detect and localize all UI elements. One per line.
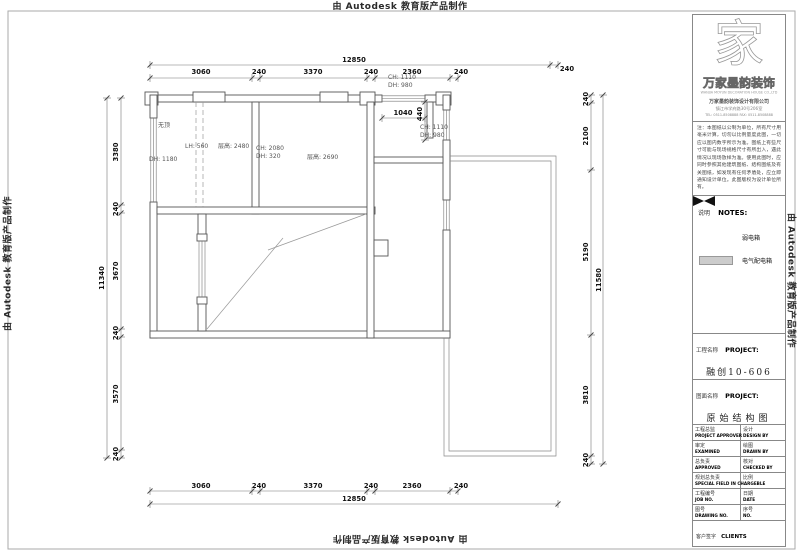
room-label: CH: 1110 xyxy=(388,74,416,81)
table-cell-en: EXAMINED xyxy=(695,449,738,454)
room-label: LH: 560 xyxy=(185,143,208,150)
dim-label: 12850 xyxy=(342,56,366,64)
dim-label: 240 xyxy=(454,68,468,76)
legend: 弱电箱电气配电箱 xyxy=(698,233,780,265)
dim-label: 3810 xyxy=(582,385,590,404)
logo-subtitle: WANJIA MOYUN DECORATION HOUSE CO.,LTD xyxy=(701,91,778,95)
dim-label: 3060 xyxy=(192,68,211,76)
clients-section: 客户签字 CLIENTS xyxy=(693,520,785,548)
table-row: 总负责APPROVED核对CHECKED BY xyxy=(693,457,785,473)
table-cell-en: NO. xyxy=(743,513,783,518)
company-name: 万家墨韵装饰设计有限公司 xyxy=(708,98,769,105)
dim-label: 240 xyxy=(454,482,468,490)
table-cell-en: APPROVED xyxy=(695,465,738,470)
dim-label: 240 xyxy=(252,482,266,490)
clients-label-en: CLIENTS xyxy=(721,534,747,540)
table-cell-en: DRAWN BY xyxy=(743,449,783,454)
table-cell-cn: 设计 xyxy=(743,426,783,433)
table-row: 审定EXAMINED绘图DRAWN BY xyxy=(693,441,785,457)
dim-label: 240 xyxy=(112,202,120,216)
room-label: CH: 2080 xyxy=(256,145,284,152)
table-cell-cn: 审定 xyxy=(695,442,738,449)
drawing-label-cn: 图面名称 xyxy=(696,394,718,400)
project-label-cn: 工程名称 xyxy=(696,348,718,354)
dim-label: 240 xyxy=(364,68,378,76)
autodesk-watermark-left: 由 Autodesk 教育版产品制作 xyxy=(1,184,14,344)
table-cell: 图号DRAWING NO. xyxy=(693,505,741,520)
legend-item: 电气配电箱 xyxy=(698,256,780,265)
dim-label: 2100 xyxy=(582,126,590,145)
table-cell-en: DESIGN BY xyxy=(743,433,783,438)
dim-label: 3370 xyxy=(304,482,323,490)
project-name-value: 融创10-606 xyxy=(696,365,782,378)
table-cell-cn: 图号 xyxy=(695,506,738,513)
table-cell-cn: 工程总监 xyxy=(695,426,738,433)
table-cell-en: CHECKED BY xyxy=(743,465,783,470)
table-row: 规划总负责SPECIAL FIELD IN CHARGEBLE比例 xyxy=(693,473,785,489)
table-row: 图号DRAWING NO.序号NO. xyxy=(693,505,785,521)
room-label: DH: 320 xyxy=(256,153,281,160)
table-row: 工程总监PROJECT APPROVER设计DESIGN BY xyxy=(693,425,785,441)
dim-label: 3570 xyxy=(112,384,120,403)
table-cell: 绘图DRAWN BY xyxy=(741,441,785,456)
table-cell: 设计DESIGN BY xyxy=(741,425,785,440)
project-label-en: PROJECT: xyxy=(725,346,759,354)
table-cell-en: JOB NO. xyxy=(695,497,738,502)
title-block: 家 万家墨韵装饰 WANJIA MOYUN DECORATION HOUSE C… xyxy=(692,14,786,547)
floor-plan-canvas: 1285024030602403370240236024030602403370… xyxy=(0,0,800,560)
dim-label: 2360 xyxy=(403,482,422,490)
notes-header-cn: 说明 xyxy=(698,210,710,217)
drawing-sheet: 1285024030602403370240236024030602403370… xyxy=(0,0,800,560)
drawing-name-section: 图面名称 PROJECT: 原始结构图 xyxy=(693,379,785,424)
dim-label: 3380 xyxy=(112,142,120,161)
dim-label: 240 xyxy=(252,68,266,76)
table-cell: 日期DATE xyxy=(741,489,785,504)
logo-name: 万家墨韵装饰 xyxy=(702,75,775,90)
autodesk-watermark-bottom: 由 Autodesk 教育版产品制作 xyxy=(320,533,480,546)
room-label: 层高: 2480 xyxy=(218,142,249,150)
room-label: 无顶 xyxy=(158,122,170,129)
table-cell-cn: 日期 xyxy=(743,490,783,497)
table-cell: 审定EXAMINED xyxy=(693,441,741,456)
terrace-railing xyxy=(444,156,556,456)
drawing-label-en: PROJECT: xyxy=(725,392,759,400)
walls xyxy=(145,92,451,338)
company-phone: TEL: 0511-8508888 FAX: 0511-8508888 xyxy=(704,113,773,117)
table-cell: 工程总监PROJECT APPROVER xyxy=(693,425,741,440)
dim-label: 240 xyxy=(364,482,378,490)
table-row: 工程编号JOB NO.日期DATE xyxy=(693,489,785,505)
table-cell-cn: 比例 xyxy=(743,474,783,481)
table-cell-cn: 序号 xyxy=(743,506,783,513)
table-cell: 工程编号JOB NO. xyxy=(693,489,741,504)
table-cell-cn: 工程编号 xyxy=(695,490,738,497)
table-cell-cn: 总负责 xyxy=(695,458,738,465)
table-cell-en: DRAWING NO. xyxy=(695,513,738,518)
diagonal-lines xyxy=(207,214,366,329)
room-label: DH: 980 xyxy=(420,132,445,139)
company-logo: 家 万家墨韵装饰 WANJIA MOYUN DECORATION HOUSE C… xyxy=(693,15,785,119)
dim-label: 11580 xyxy=(595,268,603,292)
table-cell-en: PROJECT APPROVER xyxy=(695,433,738,438)
room-annotations: 无顶LH: 560层高: 2480DH: 1180CH: 2080DH: 320… xyxy=(149,74,448,163)
legend-item: 弱电箱 xyxy=(698,233,780,242)
company-address: 镇江市学府路30号206室 xyxy=(716,105,763,112)
dim-label: 3670 xyxy=(112,261,120,280)
table-cell: 规划总负责SPECIAL FIELD IN CHARGEBLE xyxy=(693,473,741,488)
dim-label: 3060 xyxy=(192,482,211,490)
table-cell-en: SPECIAL FIELD IN CHARGEBLE xyxy=(695,481,738,486)
dim-label: 12850 xyxy=(342,495,366,503)
approval-table: 工程总监PROJECT APPROVER设计DESIGN BY审定EXAMINE… xyxy=(693,424,785,520)
table-cell-cn: 核对 xyxy=(743,458,783,465)
table-cell: 总负责APPROVED xyxy=(693,457,741,472)
dim-label: 3370 xyxy=(304,68,323,76)
drawing-name-label: 图面名称 PROJECT: xyxy=(696,383,782,402)
room-label: CH: 1110 xyxy=(420,124,448,131)
logo-glyph: 家 xyxy=(714,15,764,73)
dim-label: 240 xyxy=(112,447,120,461)
notes-header-en: NOTES: xyxy=(718,209,747,217)
room-label: DH: 1180 xyxy=(149,156,178,163)
dim-label: 240 xyxy=(560,65,574,73)
dim-label: 440 xyxy=(416,107,424,121)
table-cell-cn: 绘图 xyxy=(743,442,783,449)
autodesk-watermark-top: 由 Autodesk 教育版产品制作 xyxy=(320,0,480,12)
table-cell: 比例 xyxy=(741,473,785,488)
legend-label: 电气配电箱 xyxy=(742,256,772,265)
dim-label: 240 xyxy=(112,326,120,340)
table-cell-cn: 规划总负责 xyxy=(695,474,738,481)
table-cell: 核对CHECKED BY xyxy=(741,457,785,472)
window-symbols xyxy=(151,96,449,297)
project-name-label: 工程名称 PROJECT: xyxy=(696,337,782,356)
clients-label-cn: 客户签字 xyxy=(696,534,716,540)
legend-section: 说明 NOTES: 弱电箱电气配电箱 xyxy=(693,195,785,333)
dim-label: 240 xyxy=(582,92,590,106)
distribution-box-icon xyxy=(698,256,734,265)
dim-label: 240 xyxy=(582,453,590,467)
dashed-beam-lines xyxy=(196,102,203,207)
dimension-annotations: 1285024030602403370240236024030602403370… xyxy=(98,56,607,508)
project-name-section: 工程名称 PROJECT: 融创10-606 xyxy=(693,333,785,379)
dim-label: 5190 xyxy=(582,242,590,261)
room-label: DH: 980 xyxy=(388,82,413,89)
autodesk-watermark-right: 由 Autodesk 教育版产品制作 xyxy=(786,201,799,361)
table-cell: 序号NO. xyxy=(741,505,785,520)
table-cell-en: DATE xyxy=(743,497,783,502)
dim-label: 1040 xyxy=(394,109,413,117)
notes-paragraph: 注：本图纸以公制为单位，所有尺寸用毫米计算，切勿以比例量度此图，一切应以图内数字… xyxy=(693,121,785,195)
drawing-name-value: 原始结构图 xyxy=(696,411,782,424)
dim-label: 11340 xyxy=(98,266,106,290)
legend-label: 弱电箱 xyxy=(742,233,760,242)
sheet-border xyxy=(8,11,795,549)
room-label: 层高: 2690 xyxy=(307,153,338,161)
company-logo-section: 家 万家墨韵装饰 WANJIA MOYUN DECORATION HOUSE C… xyxy=(693,15,785,121)
